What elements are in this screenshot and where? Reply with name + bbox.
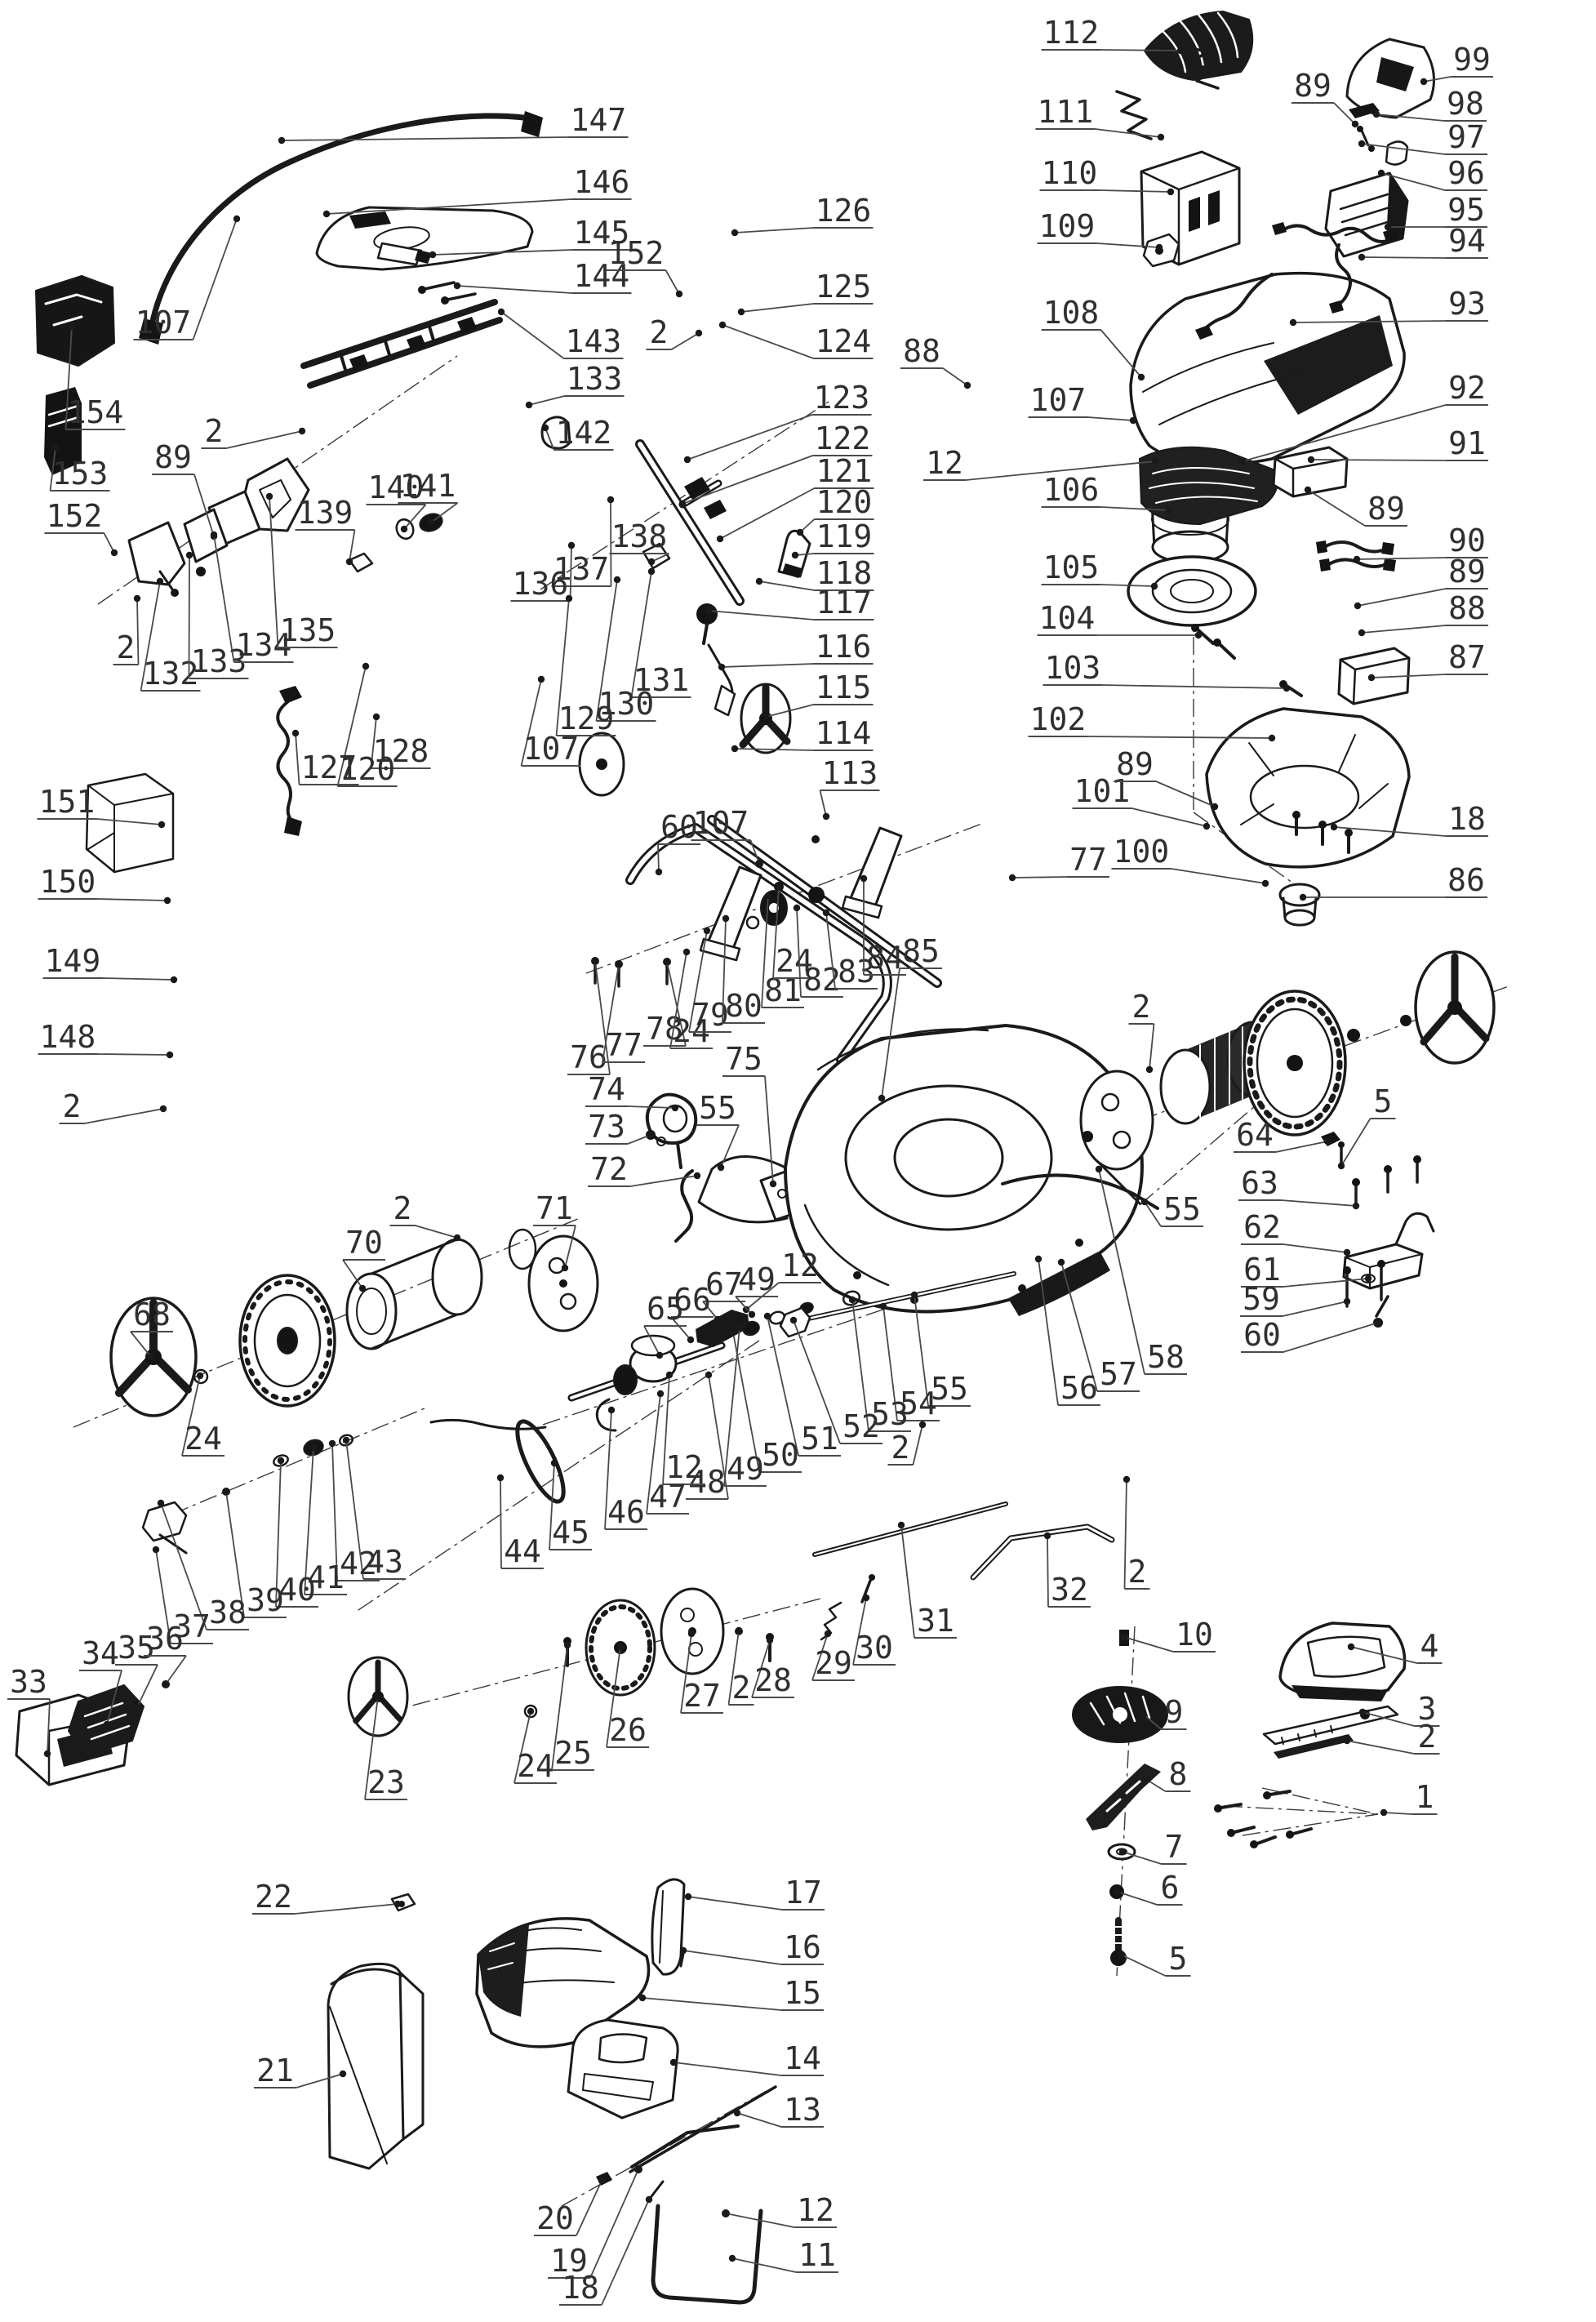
part-number-label: 11 [798,2237,836,2273]
battery-box-slot-b [1208,190,1220,225]
part-number-label: 64 [1236,1117,1274,1153]
callout-target-dot [1141,1199,1148,1205]
callout-target-dot [1123,1476,1130,1483]
part-number-label: 93 [1448,286,1486,322]
battery-box-slot-a [1189,197,1200,232]
callout-leader-line [611,500,611,586]
part-number-label: 104 [1039,600,1096,636]
callout-target-dot [1352,121,1358,127]
part-number-label: 141 [400,468,456,504]
part-number-label: 74 [588,1071,625,1107]
callout-target-dot [1283,685,1290,692]
callout-target-dot [680,1947,687,1954]
part-number-label: 86 [1447,862,1485,898]
callout-target-dot [598,2177,605,2184]
part-number-label: 152 [608,235,665,271]
callout-target-dot [770,1181,776,1187]
cable-90-end-d [1383,558,1396,572]
part-number-label: 49 [727,1451,764,1487]
part-number-label: 34 [82,1635,119,1671]
callout-target-dot [1158,134,1164,140]
cable-90-end-a [1316,540,1327,554]
part-number-label: 111 [1038,94,1094,130]
callout-target-dot [69,323,75,330]
callout-target-dot [719,322,726,328]
part-number-label: 115 [816,669,872,705]
callout-target-dot [823,910,829,916]
callout-target-dot [878,1095,885,1101]
callout-target-dot [1324,1138,1331,1145]
hubcap-86-base [1285,910,1314,925]
callout-leader-line [1012,877,1067,878]
part-number-label: 24 [517,1748,554,1784]
callout-target-dot [1368,674,1375,681]
callout-target-dot [823,813,829,820]
callout-target-dot [1358,254,1365,260]
bolt-104a-head [1191,624,1199,632]
callout-target-dot [635,2166,642,2173]
part-number-label: 89 [1367,491,1405,527]
callout-target-dot [639,1995,646,2001]
part-number-label: 49 [738,1261,776,1297]
part-number-label: 36 [146,1621,184,1657]
part-number-label: 26 [609,1712,647,1748]
part-number-label: 65 [647,1291,684,1327]
callout-target-dot [646,2196,652,2203]
callout-target-dot [1044,1532,1051,1539]
callout-target-dot [825,1630,831,1637]
callout-target-dot [527,1708,534,1715]
bolt-5-head [1110,1950,1127,1966]
screw-1e-head [1286,1830,1294,1839]
part-number-label: 116 [816,629,872,665]
part-number-label: 72 [590,1151,628,1187]
part-number-label: 16 [784,1929,821,1965]
callout-target-dot [607,496,614,503]
callout-target-dot [1146,1066,1153,1073]
bolt-5r-head [1338,1141,1345,1148]
part-number-label: 2 [1132,989,1151,1025]
callout-target-dot [278,137,285,144]
part-number-label: 29 [815,1645,852,1681]
part-number-label: 113 [822,755,878,791]
callout-target-dot [688,1630,695,1637]
callout-target-dot [157,578,163,585]
callout-target-dot [1130,417,1136,424]
part-number-label: 55 [1163,1191,1201,1227]
callout-target-dot [722,915,729,922]
callout-target-dot [44,1750,51,1757]
callout-target-dot [266,493,273,500]
part-number-label: 102 [1030,701,1087,737]
part-number-label: 56 [1060,1370,1098,1406]
deck-bolt-d [1075,1239,1083,1247]
part-number-label: 31 [917,1603,954,1639]
callout-target-dot [394,1901,401,1907]
callout-target-dot [1140,1711,1147,1718]
part-number-label: 23 [367,1764,405,1800]
wheel-left-hub [278,1328,297,1354]
screw-144a-head [418,286,426,294]
callout-target-dot [52,444,59,451]
callout-target-dot [705,607,712,614]
wheel-129-hub [596,758,607,770]
axle-nut-a [1347,1029,1360,1042]
callout-target-dot [401,526,407,532]
callout-target-dot [211,532,217,538]
callout-target-dot [648,568,655,575]
part-number-label: 27 [683,1678,721,1714]
part-number-label: 47 [649,1479,687,1515]
part-number-label: 77 [605,1027,642,1063]
callout-target-dot [670,2059,677,2066]
callout-target-dot [164,897,171,904]
callout-target-dot [158,1500,164,1506]
pin-30-head [869,1574,875,1581]
part-number-label: 106 [1043,472,1100,508]
callout-target-dot [729,2255,736,2262]
cable-90-end-b [1381,542,1394,555]
callout-target-dot [722,2210,729,2217]
part-number-label: 89 [1116,746,1154,782]
screw-1d-head [1263,1791,1271,1799]
callout-target-dot [898,1522,905,1528]
impeller-9-center [1113,1707,1127,1722]
cable-90-end-c [1319,558,1331,572]
part-number-label: 103 [1045,650,1101,686]
part-number-label: 149 [45,943,101,979]
part-number-label: 32 [1051,1572,1088,1608]
part-number-label: 100 [1114,834,1170,870]
part-number-label: 42 [340,1546,377,1581]
part-number-label: 2 [393,1190,412,1226]
callout-target-dot [657,1390,664,1397]
callout-target-dot [731,229,738,236]
callout-leader-line [1362,257,1446,258]
chute-guide-17 [652,1879,684,1974]
callout-target-dot [1096,1166,1102,1172]
part-number-label: 97 [1447,119,1485,155]
bolt-59a-head [1343,1266,1351,1274]
drum-left-face [347,1274,396,1349]
callout-target-dot [1420,78,1427,85]
part-number-label: 110 [1042,155,1098,191]
part-number-label: 96 [1447,155,1485,191]
callout-target-dot [592,958,598,964]
callout-target-dot [134,1704,140,1710]
part-number-label: 44 [504,1533,541,1569]
callout-target-dot [717,536,723,542]
part-number-label: 21 [256,2053,294,2088]
callout-target-dot [568,542,575,549]
hubcap-right-hub [1447,1000,1462,1015]
part-number-label: 70 [345,1225,383,1261]
part-number-label: 55 [699,1090,736,1126]
part-number-label: 5 [1374,1083,1393,1119]
callout-target-dot [756,578,762,585]
callout-target-dot [498,309,505,315]
part-number-label: 51 [801,1421,838,1457]
callout-target-dot [880,1303,887,1310]
callout-target-dot [736,1627,742,1634]
callout-target-dot [197,1372,203,1379]
callout-target-dot [346,558,353,565]
callout-target-dot [764,1313,771,1319]
callout-target-dot [738,309,745,315]
hub-disc-71-center [559,1279,567,1288]
callout-target-dot [1138,374,1145,380]
callout-target-dot [538,676,545,683]
callout-target-dot [647,1132,654,1138]
part-number-label: 6 [1161,1870,1180,1906]
callout-target-dot [1119,1848,1126,1855]
callout-target-dot [790,1317,797,1323]
part-number-label: 38 [209,1595,247,1630]
callout-target-dot [666,1372,673,1378]
callout-target-dot [797,529,803,536]
part-number-label: 45 [552,1515,589,1550]
callout-target-dot [375,1693,381,1700]
part-number-label: 84 [866,940,904,976]
callout-target-dot [1354,603,1361,609]
wheel-right-hub [1287,1055,1303,1071]
callout-target-dot [656,1352,663,1359]
callout-target-dot [158,821,165,828]
part-number-label: 13 [784,2092,821,2128]
callout-target-dot [714,1316,721,1323]
part-number-label: 52 [842,1408,880,1444]
part-number-label: 1 [1416,1779,1434,1815]
bracket-bolt-a [196,567,206,576]
part-number-label: 107 [523,731,580,767]
part-number-label: 2 [732,1670,751,1706]
part-number-label: 15 [784,1975,821,2011]
callout-target-dot [1308,456,1314,463]
callout-target-dot [1203,823,1210,830]
callout-target-dot [278,1457,284,1464]
callout-target-dot [167,1052,173,1058]
part-number-label: 2 [205,413,224,449]
part-number-label: 107 [1030,382,1087,418]
part-number-label: 82 [803,962,841,998]
callout-target-dot [685,1893,691,1900]
callout-target-dot [1166,507,1172,514]
callout-target-dot [428,519,434,526]
part-number-label: 152 [47,498,103,534]
callout-target-dot [1380,1809,1387,1816]
deck-bolt-a [853,1271,861,1279]
callout-target-dot [614,576,620,583]
part-number-label: 4 [1420,1628,1439,1664]
callout-target-dot [340,2071,346,2077]
bolt-18b-head [1318,821,1327,829]
callout-target-dot [111,549,118,556]
callout-target-dot [964,382,971,389]
callout-target-dot [919,1421,926,1428]
callout-leader-line [1101,50,1181,51]
part-number-label: 75 [725,1041,762,1077]
callout-target-dot [1385,224,1391,230]
callout-target-dot [566,595,572,602]
part-number-label: 8 [1169,1756,1188,1792]
part-number-label: 12 [926,445,963,481]
part-number-label: 50 [762,1437,799,1473]
callout-target-dot [1269,735,1275,741]
callout-target-dot [911,1292,918,1298]
callout-target-dot [497,1475,504,1481]
callout-target-dot [1344,1298,1350,1305]
part-number-label: 2 [1418,1719,1437,1755]
part-number-label: 39 [247,1582,284,1618]
callout-target-dot [362,663,369,669]
callout-target-dot [171,976,177,983]
part-number-label: 91 [1448,425,1486,461]
callout-target-dot [1354,556,1360,563]
callout-target-dot [223,1488,229,1495]
screw-144b-head [441,296,449,305]
callout-target-dot [454,282,460,289]
deck-bolt-c [1018,1284,1026,1292]
part-number-label: 153 [52,456,109,492]
callout-target-dot [153,1546,159,1553]
callout-leader-line [189,555,190,678]
part-number-label: 59 [1243,1281,1280,1317]
bolt-59b-head [1377,1260,1385,1268]
part-number-label: 22 [255,1879,292,1915]
callout-target-dot [672,1105,678,1111]
callout-target-dot [1177,47,1184,54]
callout-target-dot [564,1642,571,1648]
fan-105-outer [1128,557,1256,625]
callout-target-dot [429,251,436,258]
callout-target-dot [776,883,782,890]
callout-target-dot [1344,1249,1350,1256]
part-number-label: 89 [154,439,192,475]
callout-target-dot [292,730,299,736]
callout-target-dot [1195,632,1202,638]
callout-target-dot [734,2110,740,2116]
callout-target-dot [1239,458,1246,465]
part-number-label: 89 [1294,68,1331,104]
part-number-label: 120 [816,484,873,520]
callout-target-dot [679,500,686,507]
callout-target-dot [1167,189,1174,195]
callout-target-dot [1338,1163,1345,1169]
bolt-18a-head [1292,811,1300,819]
part-number-label: 88 [903,333,940,369]
part-number-label: 151 [39,784,96,820]
callout-target-dot [687,1337,694,1343]
callout-target-dot [162,1681,169,1688]
part-number-label: 150 [40,864,96,900]
part-number-label: 18 [562,2270,599,2306]
part-number-label: 12 [797,2192,834,2228]
part-number-label: 76 [570,1039,607,1075]
part-number-label: 33 [10,1664,47,1700]
drum-right-face [1161,1050,1210,1123]
callout-target-dot [148,1354,154,1360]
callout-target-dot [676,291,682,297]
callout-target-dot [526,402,532,408]
callout-target-dot [1344,1737,1350,1744]
callout-target-dot [1358,629,1365,636]
callout-target-dot [329,1440,336,1447]
callout-target-dot [860,875,867,882]
part-number-label: 62 [1243,1209,1281,1245]
part-number-label: 109 [1039,208,1096,244]
part-number-label: 123 [814,380,870,416]
part-number-label: 94 [1448,223,1486,259]
callout-target-dot [765,892,771,899]
bolt-97-b [1368,145,1375,152]
callout-target-dot [694,1172,700,1179]
part-number-label: 63 [1241,1165,1278,1201]
part-number-label: 98 [1447,86,1484,122]
part-number-label: 30 [856,1630,893,1666]
part-number-label: 148 [40,1019,96,1055]
part-number-label: 2 [891,1430,910,1466]
parts-diagram-page: 1471461451441431331071541531522891322133… [0,0,1596,2322]
nut-82 [808,887,825,903]
bolt-63b-head [1384,1165,1392,1173]
knob-117 [696,603,718,625]
part-number-label: 85 [902,933,940,969]
callout-target-dot [454,1234,460,1241]
axle-nut-b [1400,1015,1412,1026]
callout-target-dot [1365,1275,1371,1282]
callout-target-dot [1118,1951,1124,1958]
gearbox-pulley [614,1365,637,1395]
bolt-97-a [1357,126,1363,132]
callout-target-dot [310,1444,317,1451]
gearbox-65-top [632,1336,674,1355]
part-number-label: 105 [1043,549,1100,585]
screw-1a-head [1214,1804,1222,1813]
part-number-label: 99 [1453,42,1491,78]
callout-target-dot [1331,824,1337,830]
callout-target-dot [683,949,690,955]
part-number-label: 71 [536,1190,573,1226]
callout-target-dot [1359,1709,1366,1715]
drum-left-back [433,1239,482,1314]
part-number-label: 119 [816,518,873,554]
bolt-63c-head [1413,1155,1421,1163]
part-number-label: 17 [785,1875,822,1911]
part-number-label: 9 [1165,1694,1184,1730]
callout-target-dot [1121,1634,1127,1640]
part-number-label: 88 [1448,590,1486,626]
part-number-label: 10 [1176,1617,1213,1653]
part-number-label: 142 [556,415,612,451]
part-number-label: 18 [1448,801,1486,837]
part-number-label: 92 [1448,370,1486,406]
callout-target-dot [1375,1319,1381,1326]
nut-107m2 [811,835,820,843]
callout-target-dot [1300,894,1306,901]
axle-nut-c [1082,1131,1093,1142]
callout-target-dot [794,905,800,911]
callout-target-dot [696,330,702,336]
hook-96 [1386,141,1407,164]
callout-target-dot [186,552,193,558]
hub-disc-r [1081,1071,1153,1169]
callout-target-dot [1373,111,1380,118]
hubcap-86 [1280,884,1319,905]
callout-target-dot [1144,1777,1150,1783]
part-number-label: 146 [574,164,630,200]
part-number-label: 114 [816,715,872,751]
callout-target-dot [104,1721,110,1728]
